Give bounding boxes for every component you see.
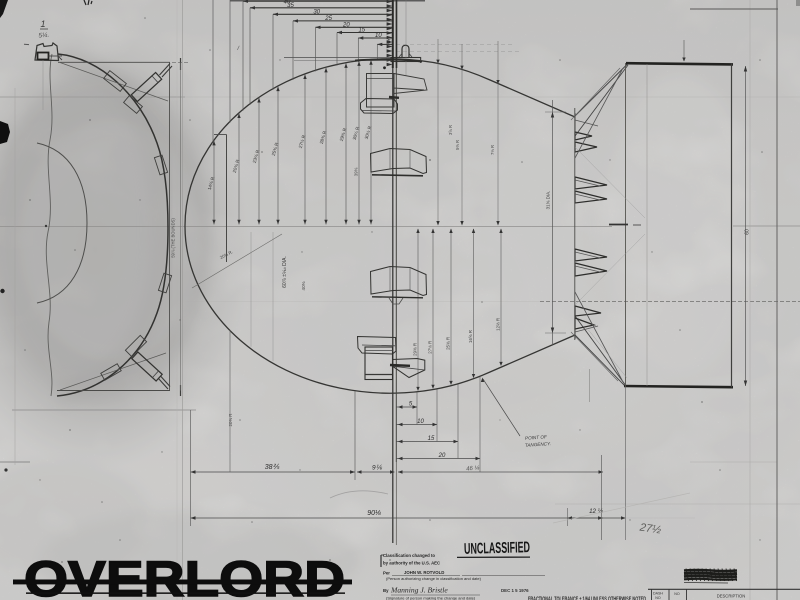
svg-text:Per: Per	[383, 571, 390, 576]
svg-text:by authority of the U.S. AEC: by authority of the U.S. AEC	[383, 561, 440, 566]
svg-text:59⅞ (THE BOUNDS): 59⅞ (THE BOUNDS)	[171, 218, 176, 258]
svg-text:By: By	[383, 588, 389, 593]
svg-text:60: 60	[745, 229, 751, 235]
svg-text:10: 10	[417, 419, 424, 425]
svg-text:10: 10	[375, 33, 382, 39]
svg-text:5⅔ R: 5⅔ R	[455, 140, 460, 150]
svg-text:39⅜: 39⅜	[354, 167, 359, 176]
svg-text:(Person authorizing change in: (Person authorizing change in classifica…	[386, 576, 482, 581]
svg-text:35: 35	[287, 3, 294, 9]
svg-text:DESCRIPTION: DESCRIPTION	[717, 594, 746, 599]
svg-text:20: 20	[342, 22, 350, 28]
svg-text:5¼.: 5¼.	[38, 31, 50, 39]
svg-text:25¾ R: 25¾ R	[446, 337, 451, 350]
svg-text:20: 20	[438, 453, 446, 459]
svg-text:12 ½: 12 ½	[589, 508, 603, 515]
svg-text:15: 15	[358, 28, 365, 34]
svg-text:1: 1	[40, 19, 45, 29]
svg-text:90⅛: 90⅛	[367, 510, 381, 517]
svg-text:DEC 1 5 1976: DEC 1 5 1976	[501, 588, 529, 593]
svg-text:7⅓ R: 7⅓ R	[490, 145, 495, 155]
svg-text:15: 15	[428, 436, 435, 442]
svg-text:DASH: DASH	[653, 592, 663, 596]
svg-text:27⅛ R: 27⅛ R	[428, 341, 433, 354]
svg-text:40⅜: 40⅜	[301, 281, 306, 290]
svg-text:NO: NO	[655, 596, 661, 600]
svg-text:NO: NO	[674, 592, 680, 596]
svg-text:Classification changed to: Classification changed to	[383, 553, 435, 558]
svg-text:31⅝ DIA.: 31⅝ DIA.	[546, 191, 551, 210]
svg-text:UNCLASSIFIED: UNCLASSIFIED	[464, 539, 530, 558]
svg-text:38⅖: 38⅖	[265, 463, 280, 471]
svg-text:30: 30	[313, 9, 320, 15]
svg-text:29⅜ R: 29⅜ R	[413, 343, 418, 356]
svg-text:60⅞ ±⅒ DIA.: 60⅞ ±⅒ DIA.	[282, 256, 288, 288]
svg-text:3⅝ R: 3⅝ R	[448, 125, 453, 135]
svg-text:9⅙: 9⅙	[372, 465, 383, 472]
svg-text:25: 25	[324, 16, 332, 22]
svg-text:12⅔ R: 12⅔ R	[496, 318, 501, 331]
svg-text:(Signature of person making th: (Signature of person making the change a…	[386, 596, 476, 600]
svg-text:JOHN W. ROTVOLD: JOHN W. ROTVOLD	[404, 570, 444, 575]
svg-text:16⅝ R: 16⅝ R	[468, 330, 473, 343]
svg-text:46 ¼: 46 ¼	[466, 465, 480, 472]
svg-text:Manning J. Bristle: Manning J. Bristle	[390, 586, 448, 595]
svg-text:20⅜ R: 20⅜ R	[228, 414, 233, 427]
